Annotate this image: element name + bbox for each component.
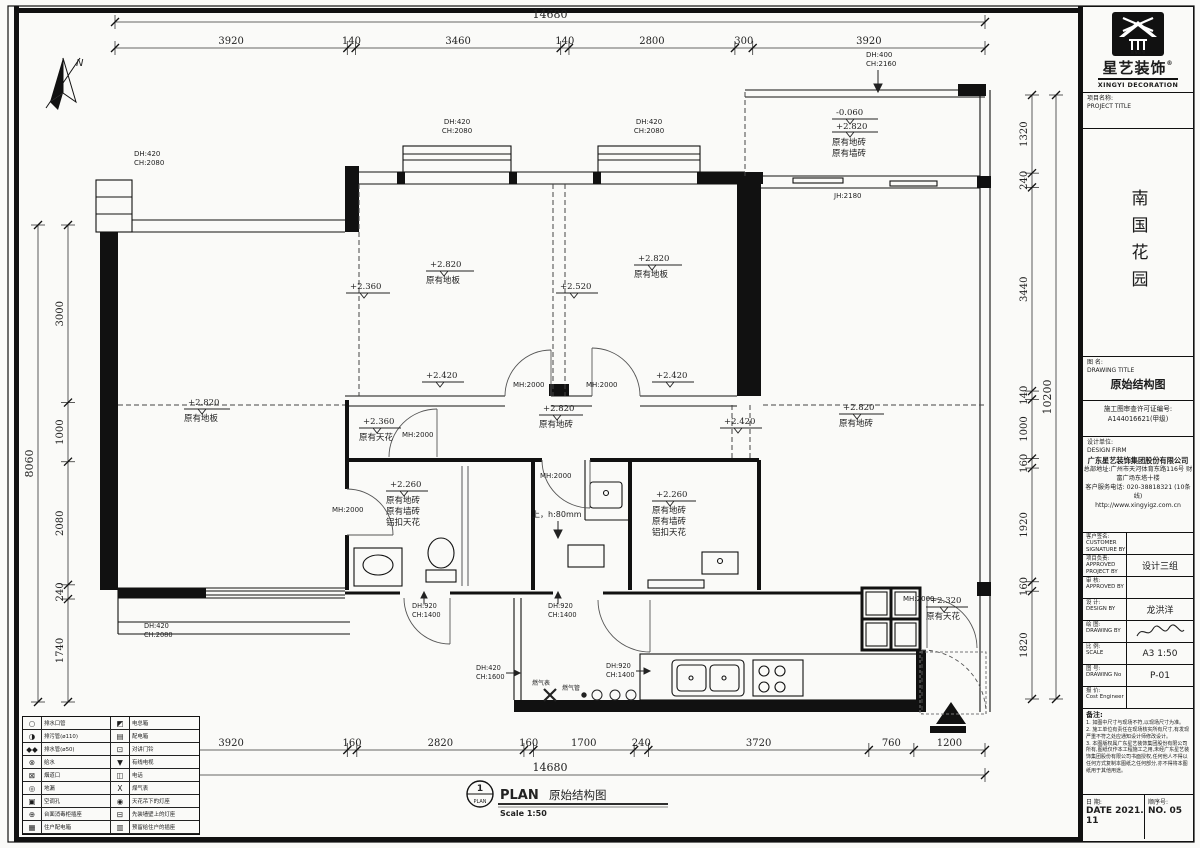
legend-icon: ⊡ [111,743,130,756]
permit-section: 施工图审查许可证编号: A144016621(甲级) [1083,401,1193,437]
project-title-section: 项目名称: PROJECT TITLE [1083,93,1193,129]
legend-label: 对讲门铃 [130,743,199,756]
window-label: DH:400 [866,51,892,59]
notes-section: 备注: 1. 如图中尺寸与现场不符,以现场尺寸为准。 2. 施工单位有责任在现场… [1083,709,1193,795]
dim-label: 3720 [746,738,771,749]
entry-marker-triangle [936,702,966,724]
door-label: DH:920 [412,602,437,610]
dim-label: 160 [1019,577,1030,596]
dim-label: 14680 [533,761,568,774]
window-label: DH:420 [636,118,662,126]
level-value: +2.820 [836,122,867,132]
legend-label: 烟道口 [42,769,111,782]
dim-label: 300 [734,36,753,47]
table-row: 审 核:APPROVED BY [1083,577,1193,599]
room-finish-label: 原有地砖 [386,495,421,506]
legend-label: 先装墙壁上的灯座 [130,808,199,821]
door-label: CH:1400 [606,671,635,679]
room-finish-label: 原有天花 [926,611,961,622]
drawing-title-label: 图 名: [1087,359,1193,367]
level-value: +2.520 [560,282,591,292]
dim-label: 160 [519,738,538,749]
level-value: +2.420 [724,417,755,427]
permit-number: A144016621(甲级) [1083,415,1193,425]
door-height-label: MH:2000 [402,431,433,439]
table-row: 绘 图:DRAWING BY [1083,621,1193,643]
project-label-en: PROJECT TITLE [1087,103,1193,111]
drawing-title-section: 图 名: DRAWING TITLE 原始结构图 [1083,357,1193,401]
room-finish-label: 原有地砖 [832,137,867,148]
row-label-en: DESIGN BY [1086,606,1126,612]
row-value: 龙洪洋 [1127,599,1193,620]
drawing-by-signature [1134,623,1186,641]
dim-label: 1920 [1019,512,1030,537]
legend-icon: ⊟ [111,808,130,821]
plan-title-en: PLAN [500,788,539,803]
level-value: +2.320 [930,596,961,606]
dim-label: 14680 [533,8,568,21]
table-row: 报 价:Cost Engineer [1083,687,1193,708]
legend-label: 空调孔 [42,795,111,808]
room-finish-label: 原有地砖 [652,505,687,516]
signature-table: 客户签名:CUSTOMER SIGNATURE BY 项目负责:APPROVED… [1083,533,1193,709]
project-label: 项目名称: [1087,95,1193,103]
legend-icon: ◫ [111,769,130,782]
legend-icon: ▦ [23,821,42,834]
legend-label: 有线电视 [130,756,199,769]
table-row: 比 例:SCALE A3 1:50 [1083,643,1193,665]
level-value: +2.420 [656,371,687,381]
dimension-lines: 3920140346014028003003920146803920160282… [23,8,1063,782]
dim-label: 2820 [428,738,453,749]
door-height-label: MH:2000 [540,472,571,480]
legend-icon: ▼ [111,756,130,769]
table-row: 项目负责:APPROVED PROJECT BY 设计三组 [1083,555,1193,577]
level-value: +2.820 [430,260,461,270]
level-value: +2.360 [350,282,381,292]
drawing-sheet: N [0,0,1200,848]
dim-label: 3920 [218,36,243,47]
row-value: P-01 [1127,665,1193,686]
legend-label: 排水口管 [42,717,111,730]
gas-pipe-label: 燃气管 [562,684,580,692]
legend-icon: ⊠ [23,769,42,782]
logo-box-text: XING YI [1131,50,1146,55]
door-label: DH:920 [606,662,631,670]
level-value: +2.260 [656,490,687,500]
dim-label: 140 [1019,386,1030,405]
north-arrow: N [46,58,84,110]
table-row: 图 号:DRAWING No P-01 [1083,665,1193,687]
plan-title: 1 PLAN PLAN 原始结构图 Scale 1:50 [467,781,668,818]
dim-label: 3920 [856,36,881,47]
date-en: DATE [1086,806,1112,816]
legend-label: 台面消毒柜插座 [42,808,111,821]
legend-label: 预留给住户的插座 [130,821,199,834]
design-firm-label: 设计单位: [1087,439,1193,447]
window-label: CH:2080 [442,127,472,135]
dim-label: 760 [882,738,901,749]
level-value: +2.820 [543,404,574,414]
legend-label: 电话 [130,769,199,782]
leader-arrows [421,70,882,701]
sequence-value: 05 [1170,806,1183,816]
legend-label: 电总箱 [130,717,199,730]
dim-label: 8060 [23,450,36,478]
door-height-label: MH:2000 [332,506,363,514]
dim-label: 1000 [55,419,66,444]
logo-cn: 星艺装饰 [1102,59,1166,77]
walls-outline [96,90,990,712]
plan-number: 1 [477,784,483,794]
dim-label: 140 [342,36,361,47]
row-value: 设计三组 [1127,555,1193,576]
legend-icon: ◉ [111,795,130,808]
row-value [1127,687,1193,708]
sequence-en: NO. [1148,806,1166,816]
legend-label: 排水管(ø50) [42,743,111,756]
drawing-title-label-en: DRAWING TITLE [1087,367,1193,375]
design-firm-label-en: DESIGN FIRM [1087,447,1193,455]
door-label: DH:920 [548,602,573,610]
firm-name: 广东星艺装饰集团股份有限公司 [1083,456,1193,466]
dim-label: 1320 [1019,121,1030,146]
window-label: DH:420 [444,118,470,126]
room-finish-label: 原有地板 [184,413,219,424]
design-firm-section: 设计单位: DESIGN FIRM 广东星艺装饰集团股份有限公司 总部地址:广州… [1083,437,1193,533]
dim-label: 1200 [937,738,962,749]
room-finish-label: 原有天花 [359,432,394,443]
room-finish-label: 原有墙砖 [832,148,867,159]
dim-label: 10200 [1041,380,1054,415]
project-name: 南国花园 [1126,189,1151,297]
dim-label: 2080 [55,511,66,536]
dim-label: 160 [343,738,362,749]
table-row: 设 计:DESIGN BY 龙洪洋 [1083,599,1193,621]
legend-icon: ◩ [111,717,130,730]
row-label-en: DRAWING No [1086,672,1126,678]
level-value: +2.420 [426,371,457,381]
row-label-en: CUSTOMER SIGNATURE BY [1086,540,1126,553]
level-value: +2.820 [188,398,219,408]
row-value [1127,533,1193,554]
table-row: 客户签名:CUSTOMER SIGNATURE BY [1083,533,1193,555]
door-label: CH:1400 [548,611,577,619]
legend-icon: ◆◆ [23,743,42,756]
legend-icon: ▤ [111,730,130,743]
dim-label: 3000 [55,301,66,326]
legend-label: 配电箱 [130,730,199,743]
drawing-title: 原始结构图 [1083,376,1193,392]
room-finish-label: 原有地砖 [539,419,574,430]
dim-label: 3460 [445,36,470,47]
legend-icon: ▣ [23,795,42,808]
dim-label: 140 [555,36,574,47]
dim-label: 1820 [1019,632,1030,657]
level-value: +2.260 [390,480,421,490]
row-value [1127,577,1193,598]
window-label: CH:2080 [144,631,173,639]
north-label: N [76,58,84,69]
room-finish-label: 原有地砖 [839,418,874,429]
permit-label: 施工图审查许可证编号: [1083,405,1193,415]
plan-scale: Scale 1:50 [500,809,547,818]
dim-label: 3920 [218,738,243,749]
legend-label: 给水 [42,756,111,769]
level-value: +2.820 [638,254,669,264]
legend-label: 排污管(ø110) [42,730,111,743]
row-label-en: APPROVED PROJECT BY [1086,562,1126,575]
company-logo: XING YI 星艺装饰® XINGYI DECORATION [1083,7,1193,93]
door-height-label: MH:2000 [513,381,544,389]
row-label-en: Cost Engineer [1086,694,1126,700]
row-label-en: APPROVED BY [1086,584,1126,590]
window-label: DH:420 [144,622,169,630]
firm-address: 总部地址:广州市天河体育东路116号 财富广场东塔十楼 [1083,466,1193,484]
level-value: -0.060 [836,108,863,118]
dim-label: 3440 [1019,277,1030,302]
gas-meter-label: 燃气表 [532,679,550,687]
legend-icon: ▥ [111,821,130,834]
row-value: A3 1:50 [1127,643,1193,664]
firm-website: http://www.xingyigz.com.cn [1083,502,1193,511]
legend-label: 煤气表 [130,782,199,795]
level-value: +2.360 [363,417,394,427]
door-label: CH:1400 [412,611,441,619]
step-label: 上，h:80mm [532,510,582,519]
project-name-section: 南国花园 [1083,129,1193,357]
room-finish-label: 铝扣天花 [386,517,421,528]
legend-icon: ◎ [23,782,42,795]
logo-en: XINGYI DECORATION [1098,78,1178,89]
row-label-en: DRAWING BY [1086,628,1126,634]
door-height-label: MH:2000 [586,381,617,389]
legend-label: 地漏 [42,782,111,795]
dim-label: 2800 [639,36,664,47]
logo-mark-icon: XING YI [1111,11,1165,57]
room-finish-label: 原有地板 [634,269,669,280]
legend-icon: X [111,782,130,795]
row-label-en: SCALE [1086,650,1126,656]
legend-label: 天花吊下的灯座 [130,795,199,808]
date-section: 日 期: DATE 2021. 11 顺序号: NO. 05 [1083,795,1193,839]
registered-mark: ® [1167,60,1174,67]
dim-label: 160 [1019,454,1030,473]
room-finish-label: 原有墙砖 [386,506,421,517]
date-label: 日 期: [1086,797,1144,806]
window-label: CH:2160 [866,60,896,68]
window-label: DH:420 [476,664,501,672]
legend-table: ○ 排水口管 ◩ 电总箱 ◑ 排污管(ø110) ▤ 配电箱 ◆◆ 排水管(ø5… [22,716,200,835]
plan-number-sub: PLAN [473,799,486,805]
note-line: 3. 本图版权属广东星艺装饰集团股份有限公司所有,图纸仅作本工程施工之用,未经广… [1086,741,1190,775]
title-block: XING YI 星艺装饰® XINGYI DECORATION 项目名称: PR… [1082,6,1194,842]
room-finish-label: 铝扣天花 [652,527,687,538]
dim-label: 1740 [55,638,66,663]
sequence-label: 顺序号: [1148,797,1182,806]
legend-label: 住户配电箱 [42,821,111,834]
legend-icon: ⊕ [23,808,42,821]
plan-title-cn: 原始结构图 [549,788,607,802]
level-value: +2.820 [843,403,874,413]
legend-icon: ◑ [23,730,42,743]
dim-label: 1000 [1019,416,1030,441]
window-label: JH:2180 [833,192,862,200]
firm-phone: 客户服务电话: 020-38818321 (10条线) [1083,484,1193,502]
window-label: DH:420 [134,150,160,158]
dim-label: 240 [55,582,66,601]
dim-label: 240 [1019,171,1030,190]
window-label: CH:1600 [476,673,505,681]
room-finish-label: 原有地板 [426,275,461,286]
room-finish-label: 原有墙砖 [652,516,687,527]
legend-icon: ⊗ [23,756,42,769]
dim-label: 240 [632,738,651,749]
plan-labels: DH:420 CH:2080 DH:420 CH:2080 DH:420 CH:… [134,51,961,692]
window-label: CH:2080 [134,159,164,167]
window-label: CH:2080 [634,127,664,135]
note-line: 2. 施工单位有责任在现场核实所有尺寸,有发现严重不符之处应通知设计师修改设计。 [1086,727,1190,741]
dim-label: 1700 [571,738,596,749]
legend-icon: ○ [23,717,42,730]
